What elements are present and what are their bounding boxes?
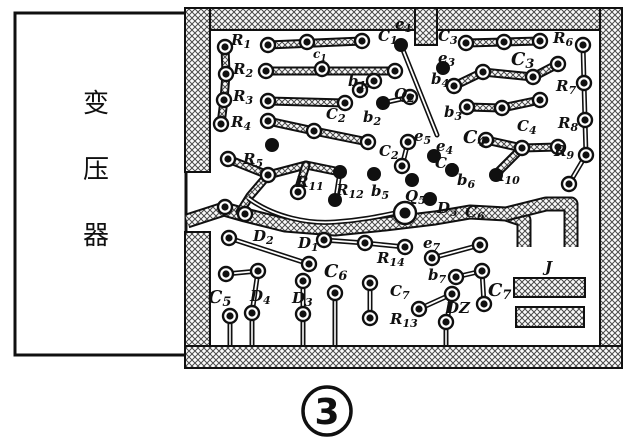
component-label-C5: C5	[208, 287, 231, 310]
figure-number: 3	[314, 392, 339, 433]
component-label-b5: b5	[371, 182, 389, 202]
solder-pad-hole	[442, 318, 449, 325]
component-label-C7: C7	[390, 282, 410, 302]
solder-pad-hole	[264, 97, 271, 104]
solder-pad-hole	[452, 273, 459, 280]
component-label-b6: b6	[457, 171, 476, 191]
component-label-c1: c1	[313, 47, 327, 64]
solder-pad-hole	[248, 309, 255, 316]
transformer-char: 器	[83, 221, 109, 251]
transformer-char: 变	[83, 89, 109, 119]
solder-pad-hole	[341, 99, 348, 106]
solder-pad-hole	[476, 241, 483, 248]
solder-pad-hole	[370, 77, 377, 84]
solder-pad-hole	[222, 270, 229, 277]
solder-pad-hole	[518, 144, 525, 151]
solder-pad-hole	[264, 41, 271, 48]
hatch-trace-fill	[268, 101, 345, 103]
solder-pad-hole	[358, 37, 365, 44]
solder-pad-hole	[463, 103, 470, 110]
component-label-D2: D2	[252, 227, 274, 247]
component-label-b7: b7	[428, 266, 447, 286]
component-label-R7: R7	[555, 77, 576, 97]
solder-pad-hole	[536, 96, 543, 103]
solder-pad-hole	[241, 210, 248, 217]
transformer-char: 压	[83, 155, 109, 185]
transformer-label: 变压器	[83, 89, 109, 251]
solder-pad-hole	[529, 73, 536, 80]
solder-pad-hole	[478, 267, 485, 274]
jumper-pad	[516, 307, 584, 327]
solder-pad-hole	[498, 104, 505, 111]
component-label-b2: b2	[363, 108, 382, 128]
solder-pad-hole	[366, 314, 373, 321]
solder-pad-hole	[480, 300, 487, 307]
board-border-band	[185, 232, 210, 346]
scanned-page: 变压器 R1R2R3R4R5C1c1e1b1C2b2C2Q2C3e3b4C3R6…	[0, 0, 632, 446]
component-label-R6: R6	[552, 29, 573, 49]
solder-pad-hole	[220, 96, 227, 103]
component-label-DZ: DZ	[445, 299, 471, 317]
component-label-D3: D3	[291, 289, 313, 309]
solder-pad-hole	[580, 79, 587, 86]
solder-pad-hole	[264, 117, 271, 124]
solder-pad-hole	[462, 39, 469, 46]
component-label-R9: R9	[553, 142, 574, 162]
component-label-C6: C6	[324, 261, 347, 284]
transformer-box: 变压器	[15, 13, 186, 355]
component-label-R5: R5	[242, 150, 263, 170]
solder-pad-hole	[364, 138, 371, 145]
solder-pad-solid	[265, 138, 279, 152]
component-label-Q2: Q2	[394, 85, 415, 105]
component-label-R1: R1	[230, 31, 251, 51]
solder-pad-hole	[320, 236, 327, 243]
solder-pad-hole	[310, 127, 317, 134]
component-label-C3: C3	[511, 49, 534, 72]
solder-pad-solid	[333, 165, 347, 179]
component-label-C4: C4	[517, 117, 537, 137]
board-border-band	[185, 346, 622, 368]
solder-pad-hole	[361, 239, 368, 246]
board-border-band	[600, 8, 622, 368]
component-label-D1: D1	[297, 234, 319, 254]
solder-pad-hole	[221, 43, 228, 50]
solder-pad-hole	[299, 277, 306, 284]
solder-pad-hole	[225, 234, 232, 241]
solder-pad-hole	[448, 290, 455, 297]
solder-pad-hole	[303, 38, 310, 45]
solder-pad-hole	[221, 203, 228, 210]
solder-pad-hole	[415, 305, 422, 312]
solder-pad-hole	[366, 279, 373, 286]
solder-pad-hole	[318, 65, 325, 72]
solder-pad-hole	[398, 162, 405, 169]
component-label-C2: C2	[379, 142, 399, 162]
solder-pad-hole	[428, 254, 435, 261]
component-label-R8: R8	[557, 114, 578, 134]
solder-pad-hole	[226, 312, 233, 319]
component-label-D4: D4	[249, 287, 271, 307]
component-label-C7: C7	[488, 280, 511, 303]
jumper-pad	[514, 278, 585, 297]
solder-pad-hole	[479, 68, 486, 75]
component-label-C4: C4	[463, 127, 486, 150]
component-label-e7: e7	[423, 234, 441, 254]
component-label-R2: R2	[232, 60, 253, 80]
component-label-R11: R11	[295, 173, 324, 193]
component-label-C6: C6	[435, 154, 455, 174]
component-label-e5: e5	[414, 127, 431, 147]
solder-pad-hole	[224, 155, 231, 162]
solder-pad-hole	[581, 116, 588, 123]
solder-pad-hole	[404, 138, 411, 145]
component-label-D5: D5	[436, 199, 458, 219]
figure-caption: 3	[303, 387, 351, 435]
solder-pad-hole	[536, 37, 543, 44]
component-label-Q5: Q5	[405, 187, 426, 207]
solder-pad-hole	[450, 82, 457, 89]
component-label-R3: R3	[232, 87, 253, 107]
solder-pad-hole	[401, 243, 408, 250]
solder-pad-hole	[391, 67, 398, 74]
solder-pad-solid	[367, 167, 381, 181]
solder-pad-hole	[262, 67, 269, 74]
solder-pad-hole	[500, 38, 507, 45]
solder-pad-solid	[405, 173, 419, 187]
pcb-diagram: 变压器 R1R2R3R4R5C1c1e1b1C2b2C2Q2C3e3b4C3R6…	[0, 0, 632, 446]
solder-pad-hole	[400, 208, 411, 219]
board-border-band	[185, 8, 210, 172]
solder-pad-hole	[331, 289, 338, 296]
solder-pad-solid	[376, 96, 390, 110]
solder-pad-hole	[299, 310, 306, 317]
solder-pad-hole	[254, 267, 261, 274]
solder-pad-hole	[264, 171, 271, 178]
solder-pad-hole	[222, 70, 229, 77]
border-tab	[415, 8, 437, 45]
component-label-R12: R12	[335, 181, 364, 201]
component-label-J: J	[542, 258, 553, 276]
solder-pad-hole	[305, 260, 312, 267]
component-label-R4: R4	[230, 113, 251, 133]
solder-pad-hole	[217, 120, 224, 127]
solder-pad-hole	[582, 151, 589, 158]
solder-pad-hole	[554, 60, 561, 67]
component-label-e3: e3	[438, 49, 456, 69]
solder-pad-hole	[565, 180, 572, 187]
solder-pad-hole	[579, 41, 586, 48]
